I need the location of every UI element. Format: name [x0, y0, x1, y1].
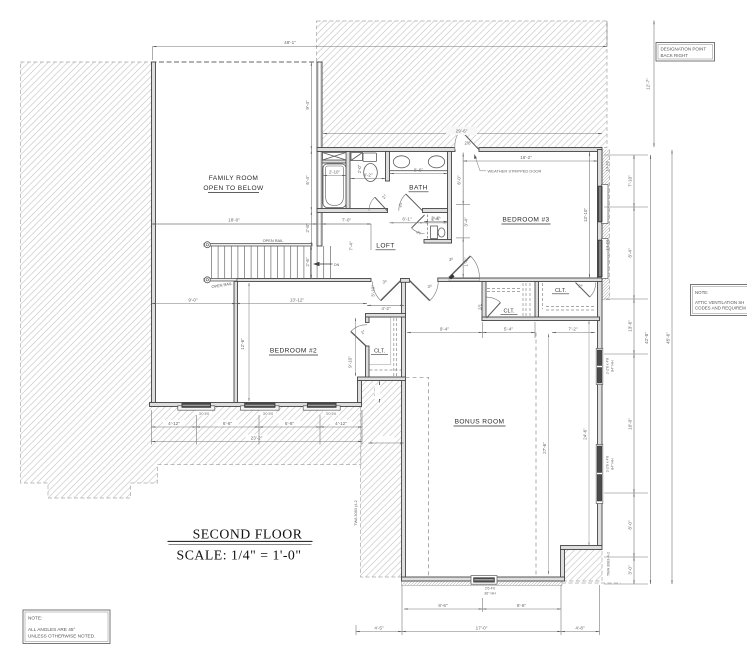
svg-text:1'-6": 1'-6" [464, 257, 469, 267]
svg-text:2⁸: 2⁸ [578, 284, 582, 289]
svg-text:7'-4": 7'-4" [349, 241, 354, 251]
svg-text:8'-6": 8'-6" [517, 603, 527, 608]
svg-text:3⁰: 3⁰ [449, 257, 453, 262]
svg-text:2/1: 2/1 [478, 303, 483, 310]
svg-text:18'-0": 18'-0" [228, 218, 240, 223]
svg-text:ATTIC VENTILATION SH: ATTIC VENTILATION SH [695, 300, 744, 305]
svg-text:3'-4": 3'-4" [464, 217, 469, 227]
svg-text:23'-2": 23'-2" [251, 435, 263, 440]
svg-text:2'-10": 2'-10" [329, 170, 340, 175]
svg-text:10'-0": 10'-0" [628, 418, 633, 430]
svg-text:4'-8": 4'-8" [575, 625, 585, 630]
svg-text:CLT.: CLT. [555, 288, 567, 294]
svg-text:TWA 3083 (4-2: TWA 3083 (4-2 [354, 500, 358, 525]
svg-text:4'-2": 4'-2" [363, 173, 373, 178]
svg-text:13'-10": 13'-10" [583, 208, 588, 223]
svg-text:UNLESS OTHERWISE NOTED.: UNLESS OTHERWISE NOTED. [28, 634, 95, 639]
svg-text:36" HH: 36" HH [484, 592, 496, 596]
svg-text:9'-10": 9'-10" [348, 356, 353, 368]
svg-text:8'-4": 8'-4" [628, 248, 633, 258]
svg-text:TWA 3083-4-2: TWA 3083-4-2 [607, 552, 611, 576]
svg-text:ALL ANGLES ARE 45°: ALL ANGLES ARE 45° [28, 627, 75, 632]
svg-text:17'-0": 17'-0" [476, 625, 488, 630]
svg-text:CODES AND REQUIREM: CODES AND REQUIREM [695, 306, 746, 311]
svg-text:5'-4": 5'-4" [504, 326, 514, 331]
svg-text:9'-0": 9'-0" [188, 297, 198, 302]
svg-text:9'-4": 9'-4" [440, 326, 450, 331]
svg-text:SECOND FLOOR: SECOND FLOOR [193, 527, 303, 542]
svg-text:3⁰: 3⁰ [427, 284, 431, 289]
svg-text:4'-12": 4'-12" [335, 421, 347, 426]
svg-text:1'4 4'0: 1'4 4'0 [606, 161, 610, 171]
svg-text:7'-0": 7'-0" [342, 218, 352, 223]
svg-text:2'-0": 2'-0" [357, 164, 362, 173]
svg-text:CLT.: CLT. [374, 349, 386, 355]
svg-text:7'-10": 7'-10" [628, 175, 633, 187]
svg-text:DN: DN [334, 263, 340, 267]
svg-text:3'-10": 3'-10" [371, 285, 376, 297]
svg-text:6'-1": 6'-1" [402, 217, 412, 222]
svg-text:3'0 5'0: 3'0 5'0 [199, 412, 209, 416]
svg-text:SCALE: 1/4" = 1'-0": SCALE: 1/4" = 1'-0" [177, 548, 302, 563]
svg-text:BEDROOM #2: BEDROOM #2 [270, 348, 317, 355]
svg-text:WEATHER STRIPPED DOOR: WEATHER STRIPPED DOOR [488, 168, 542, 173]
svg-text:LOFT: LOFT [376, 243, 394, 250]
svg-text:6'-0": 6'-0" [457, 175, 462, 185]
svg-text:84" HH: 84" HH [611, 458, 615, 470]
svg-text:6'-6": 6'-6" [414, 168, 424, 173]
svg-text:BONUS ROOM: BONUS ROOM [455, 419, 505, 426]
svg-text:3'0 5'0: 3'0 5'0 [263, 412, 273, 416]
svg-text:12'-7": 12'-7" [646, 78, 651, 90]
svg-text:CLT.: CLT. [503, 309, 515, 315]
svg-text:3'0 5'0: 3'0 5'0 [326, 412, 336, 416]
svg-text:NOTE:: NOTE: [695, 290, 708, 295]
svg-text:8'-6": 8'-6" [438, 603, 448, 608]
svg-text:84" HH: 84" HH [611, 360, 615, 372]
svg-text:2-2'8 x 4'8: 2-2'8 x 4'8 [606, 358, 610, 374]
svg-text:OPEN RAIL: OPEN RAIL [263, 238, 285, 243]
svg-text:NOTE:: NOTE: [28, 616, 42, 621]
svg-text:BACK RIGHT: BACK RIGHT [661, 53, 689, 58]
svg-text:4'-12": 4'-12" [168, 421, 180, 426]
svg-text:6'-8": 6'-8" [285, 421, 295, 426]
svg-text:9'-4": 9'-4" [305, 100, 310, 110]
svg-text:13'-6": 13'-6" [628, 320, 633, 332]
svg-text:OPEN TO BELOW: OPEN TO BELOW [203, 185, 264, 192]
svg-text:16'-2": 16'-2" [520, 155, 532, 160]
svg-text:3⁰: 3⁰ [382, 280, 386, 285]
svg-text:2'6 4'0: 2'6 4'0 [485, 587, 495, 591]
svg-text:48'-1": 48'-1" [284, 40, 296, 45]
svg-text:24'-6": 24'-6" [583, 428, 588, 440]
svg-text:1'4 4'0: 1'4 4'0 [606, 240, 610, 250]
svg-text:2/8: 2/8 [465, 141, 472, 146]
svg-text:DESIGNATION POINT: DESIGNATION POINT [661, 47, 707, 52]
svg-text:29'-6": 29'-6" [456, 129, 468, 134]
svg-text:12'-6": 12'-6" [240, 338, 245, 350]
svg-text:2-2'8 x 4'8: 2-2'8 x 4'8 [606, 456, 610, 472]
svg-text:BEDROOM #3: BEDROOM #3 [502, 217, 549, 224]
svg-text:FAMILY ROOM: FAMILY ROOM [209, 175, 259, 182]
svg-text:2'-6": 2'-6" [305, 257, 310, 267]
svg-text:7'-2": 7'-2" [568, 326, 578, 331]
svg-text:6'-8": 6'-8" [223, 421, 233, 426]
svg-text:8'-0": 8'-0" [628, 520, 633, 530]
svg-text:45'-6": 45'-6" [666, 332, 671, 344]
svg-text:6'-4": 6'-4" [305, 175, 310, 185]
svg-text:BATH: BATH [409, 185, 428, 192]
svg-text:13'-12": 13'-12" [290, 297, 305, 302]
svg-text:27'-6": 27'-6" [542, 442, 547, 454]
svg-text:42'-8": 42'-8" [644, 332, 649, 344]
svg-text:2'-4": 2'-4" [431, 215, 440, 220]
svg-text:3'-0": 3'-0" [628, 565, 633, 575]
svg-text:4'-2": 4'-2" [381, 306, 391, 311]
svg-text:4'-5": 4'-5" [374, 625, 384, 630]
svg-text:2'-8": 2'-8" [305, 223, 310, 233]
